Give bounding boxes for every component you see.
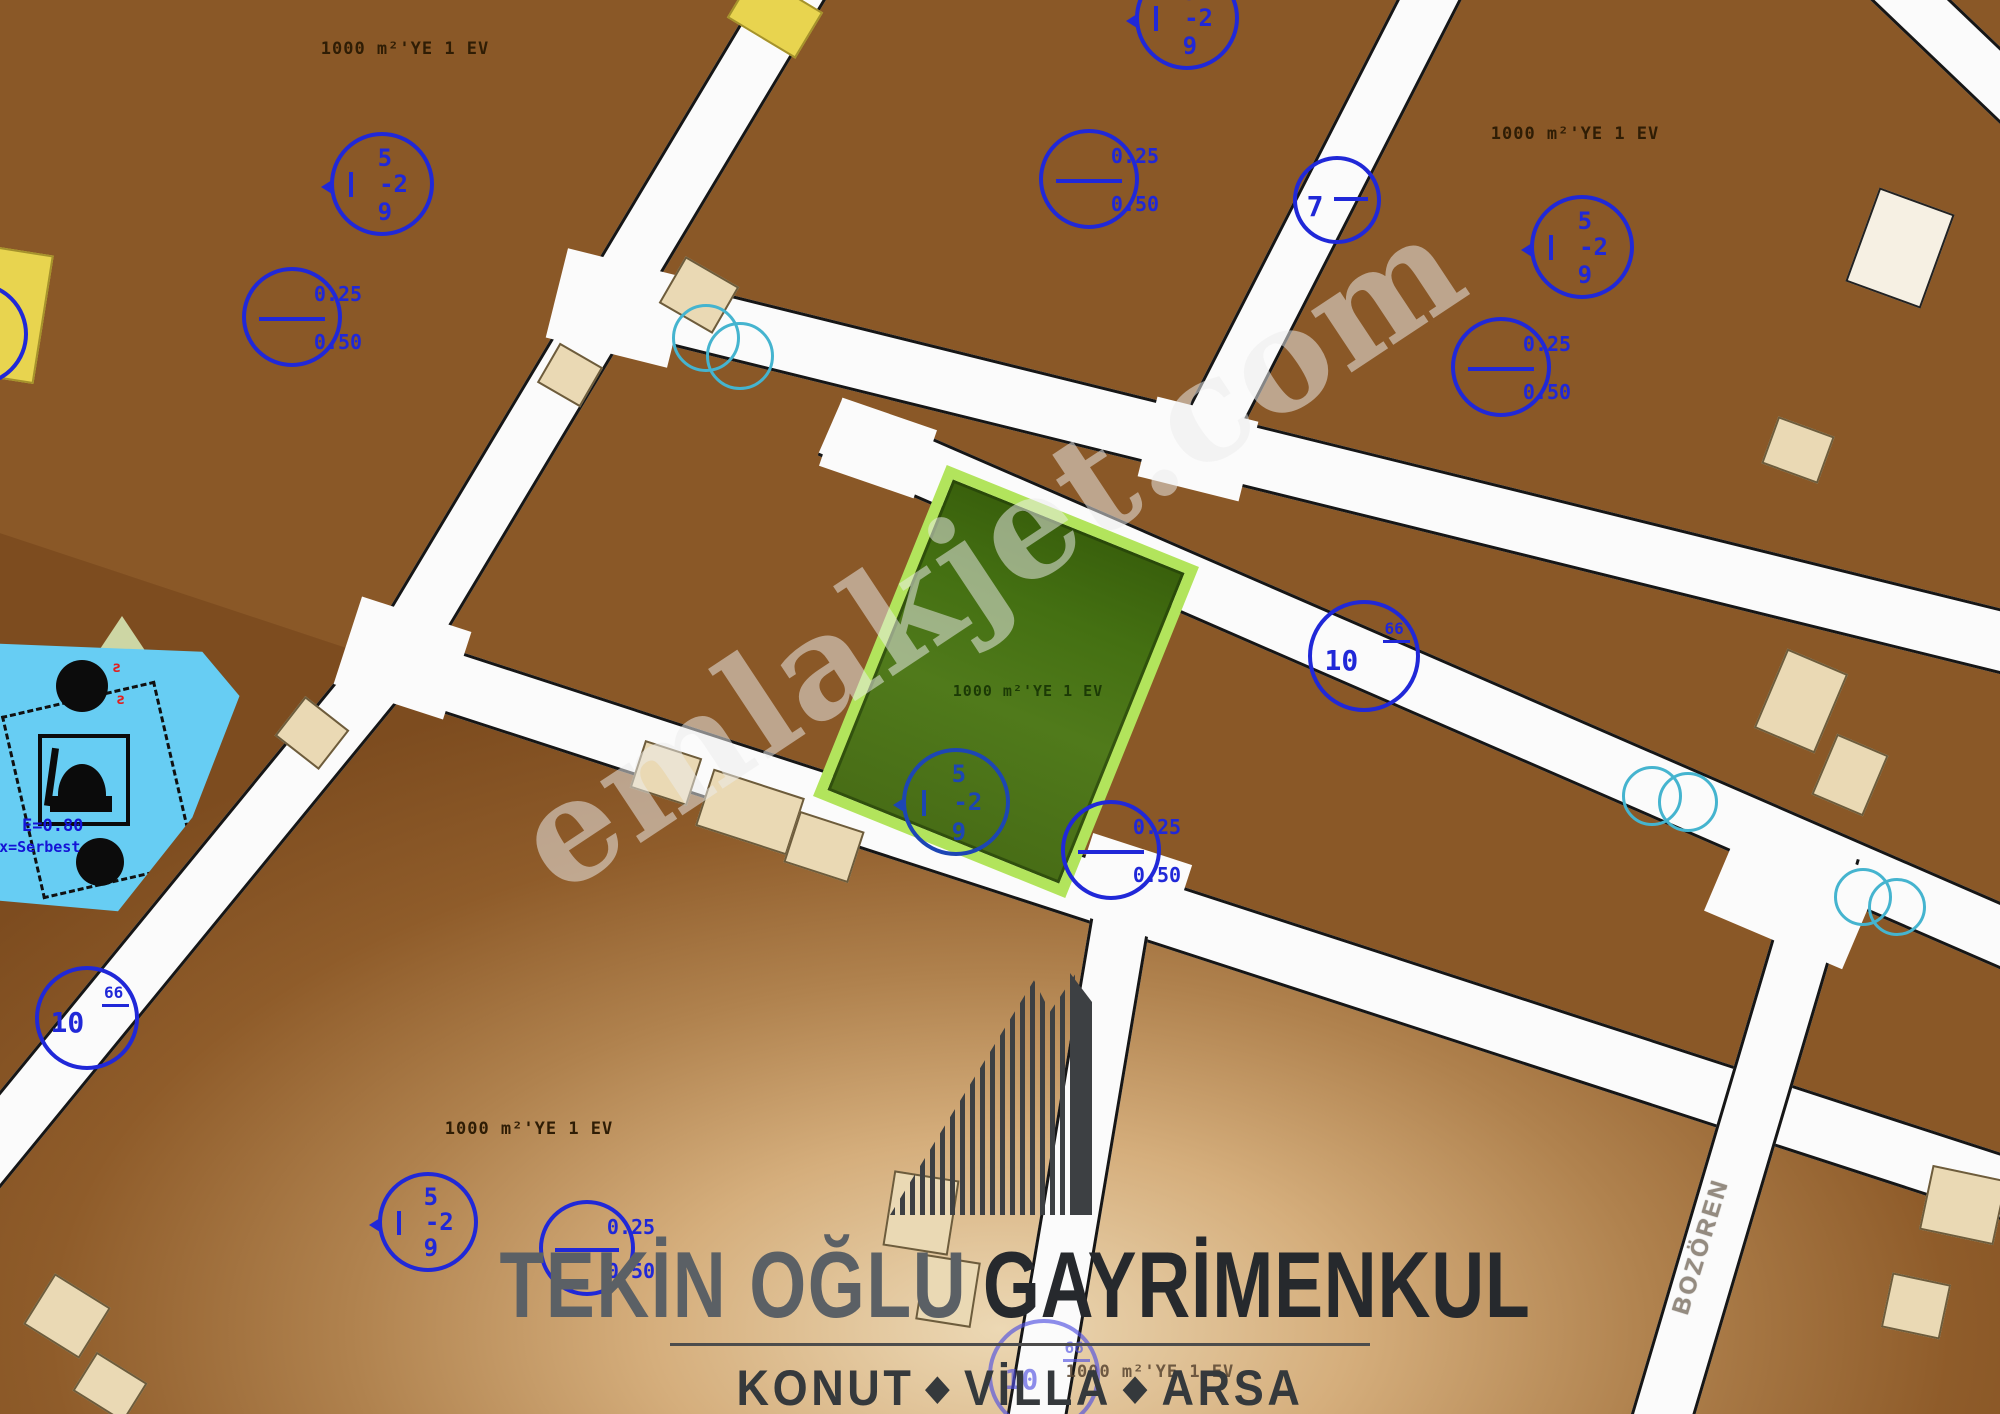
red-survey-mark: ƨ [112,658,121,676]
zoning-code: 9 [1578,261,1592,289]
zoning-order: -2 [425,1208,454,1236]
zoning-tick [321,180,332,194]
ratio-divider [1078,850,1144,854]
road-topright-corner [1853,0,2000,159]
ratio-divider [1468,367,1534,371]
parcel-density-label: 1000 m²'YE 1 EV [953,682,1103,700]
utility-circle [706,322,774,390]
road-width-value: 10 [51,1006,85,1039]
taks-value: 0.25 [1089,144,1181,168]
zoning-order: -2 [379,170,408,198]
logo-brand-dark: GAYRİMENKUL [983,1231,1531,1339]
taks-value: 0.25 [292,282,384,306]
ratio-circle: 0.25 0.50 [1451,317,1551,417]
building-footprint [1845,187,1954,308]
zoning-circle: 5 -2 9 [378,1172,478,1272]
parcel-density-label: 1000 m²'YE 1 EV [445,1119,614,1139]
taks-value: 0.25 [1111,815,1203,839]
logo-building-edge [1070,973,1092,1215]
ratio-divider [1056,179,1122,183]
road-width-marker-10: 10 66 [1308,600,1420,712]
diamond-icon: ◆ [1123,1368,1150,1408]
mosque-icon [38,734,130,826]
zoning-floors: 5 [378,144,392,172]
worship-height-label: Hmax=Serbest [0,838,80,856]
zoning-circle: 5 -2 9 [1135,0,1239,70]
building-footprint [1761,416,1834,484]
zoning-bar [1154,6,1158,31]
building-footprint [1881,1272,1951,1339]
building-footprint [1811,734,1888,817]
tree-dot [56,660,108,712]
zoning-tick [893,798,904,812]
logo-tagline: KONUT ◆ VİLLA ◆ ARSA [737,1359,1304,1414]
zoning-circle: 5 -2 9 [902,748,1010,856]
ratio-circle: 0.25 0.50 [1061,800,1161,900]
zoning-code: 9 [952,818,966,846]
zoning-bar [397,1211,401,1235]
marker-dash [1334,197,1368,201]
zoning-code: 9 [424,1234,438,1262]
parcel-density-label: 1000 m²'YE 1 EV [321,39,490,59]
road-width-marker-10: 10 66 [35,966,139,1070]
zoning-circle: 5 -2 9 [1530,195,1634,299]
zoning-code: 9 [1183,32,1197,60]
tagline-arsa: ARSA [1162,1359,1304,1414]
zoning-order: -2 [1184,4,1213,32]
road-number: 66 [1383,619,1410,643]
zoning-bar [922,790,926,816]
tree-dot [76,838,124,886]
road-number: 66 [102,983,129,1007]
logo-brand-light: TEKİN OĞLU [500,1231,968,1339]
road-width-value: 7 [1307,190,1324,223]
road-width-value: 10 [1324,644,1358,677]
ratio-circle: 0.25 0.50 [242,267,342,367]
utility-circle [1658,772,1718,832]
ratio-divider [259,317,325,321]
tagline-konut: KONUT [737,1359,915,1414]
ratio-circle: 0.25 0.50 [1039,129,1139,229]
worship-ratio-label: E=0.80 [22,816,83,836]
zoning-circle: 5 -2 9 [330,132,434,236]
zoning-bar [1549,235,1553,260]
diamond-icon: ◆ [926,1368,953,1408]
zoning-code: 9 [378,198,392,226]
mosque-base [50,796,112,812]
kaks-value: 0.50 [1089,192,1181,216]
red-survey-mark: ƨ [116,690,125,708]
zoning-floors: 5 [952,760,966,788]
road-number: 66 [1063,1338,1090,1362]
kaks-value: 0.50 [292,330,384,354]
taks-value: 0.25 [1501,332,1593,356]
kaks-value: 0.50 [1501,380,1593,404]
zoning-bar [349,172,353,197]
zoning-tick [1126,14,1137,28]
zoning-map: ƨ ƨ E=0.80 Hmax=Serbest 1000 m²'YE 1 EV … [0,0,2000,1414]
zoning-floors: 5 [1578,207,1592,235]
kaks-value: 0.50 [1111,863,1203,887]
road-width-marker-7: 7 [1293,156,1381,244]
logo-brand-row: TEKİN OĞLU GAYRİMENKUL [664,1231,1366,1339]
tagline-villa: VİLLA [964,1359,1112,1414]
logo-divider [670,1343,1370,1346]
parcel-density-label: 1000 m²'YE 1 EV [1491,124,1660,144]
zoning-order: -2 [1579,233,1608,261]
zoning-order: -2 [953,788,982,816]
zoning-tick [369,1218,380,1232]
zoning-tick [1521,243,1532,257]
utility-circle [1868,878,1926,936]
